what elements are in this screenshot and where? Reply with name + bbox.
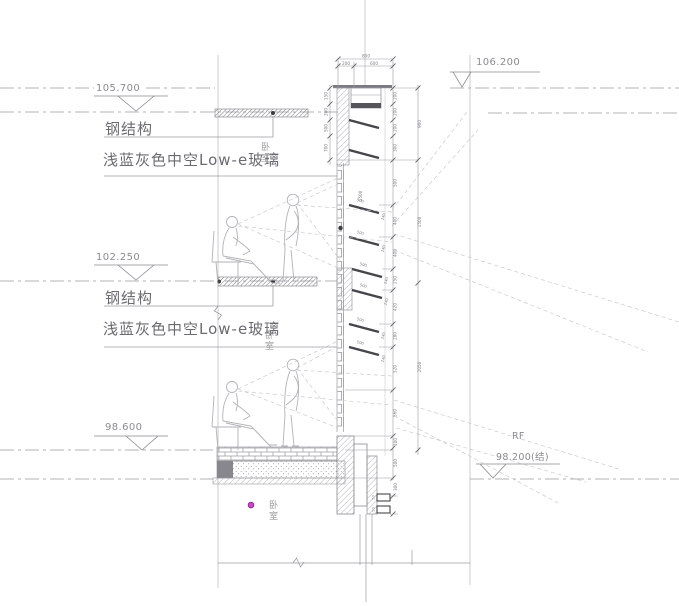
- dim-left: 500: [324, 124, 329, 132]
- label-steel-structure-upper: 钢结构: [105, 118, 153, 139]
- dim-bottom: 100: [393, 438, 398, 446]
- dim-right: 200: [393, 92, 398, 100]
- mid-slab-edge-hatch: [337, 268, 352, 310]
- dim-right: 420: [393, 303, 398, 311]
- label-lowe-glass-upper: 浅蓝灰色中空Low-e玻璃: [103, 149, 280, 170]
- dim-louver-length: 500: [356, 316, 365, 323]
- screed-band: [217, 461, 345, 478]
- dim-left: 150: [324, 92, 329, 100]
- dim-top-seg: 600: [370, 61, 378, 66]
- steel-beams: [215, 109, 317, 286]
- label-rf: RF: [512, 431, 525, 442]
- magenta-marker-dot: [248, 502, 254, 508]
- louver-array: [349, 120, 382, 355]
- label-room-mid: 卧室: [265, 331, 276, 352]
- elevation-102250: 102.250: [96, 252, 140, 263]
- bracket-lower: [377, 506, 390, 513]
- dim-bracket: 50: [372, 495, 376, 499]
- label-steel-structure-mid: 钢结构: [105, 287, 153, 308]
- dim-bottom: 500: [393, 459, 398, 467]
- dim-right: 400: [393, 249, 398, 257]
- glazing-dot: [338, 226, 342, 230]
- drawing-canvas: 800 200 600 200 200 200 300 500 400 400 …: [0, 0, 679, 606]
- sill-channel: [354, 444, 367, 506]
- dim-louver-depth: 240: [380, 212, 387, 221]
- elevation-98200: 98.200(结): [496, 449, 549, 463]
- dim-louver-depth: 240: [380, 244, 387, 253]
- dim-louver-length: 500: [356, 197, 365, 204]
- inner-hatch: [367, 456, 377, 514]
- dim-louver-length: 500: [359, 261, 368, 268]
- header-dark-bar: [351, 103, 381, 108]
- dim-louver-length: 500: [359, 282, 368, 289]
- dim-bottom: 300: [393, 483, 398, 491]
- dim-louver-length: 500: [356, 339, 365, 346]
- paver-band: [217, 447, 337, 461]
- dim-top-seg: 200: [342, 61, 350, 66]
- figure-standing-lower: [281, 359, 299, 446]
- dim-right: 520: [393, 365, 398, 373]
- parapet-cap: [333, 85, 392, 88]
- dim-right: 560: [393, 409, 398, 417]
- dim-left: 200: [324, 108, 329, 116]
- dim-right: 400: [393, 217, 398, 225]
- label-lowe-glass-mid: 浅蓝灰色中空Low-e玻璃: [103, 318, 280, 339]
- label-room-upper: 卧室: [261, 143, 272, 164]
- dim-right: 200: [393, 108, 398, 116]
- dim-right: 250: [393, 276, 398, 284]
- sight-lines: [238, 112, 679, 504]
- dim-right: 200: [393, 124, 398, 132]
- dim-outer: 900: [417, 120, 422, 128]
- parapet-wall-hatch: [337, 88, 349, 165]
- dim-louver-depth: 240: [380, 331, 387, 340]
- dim-louver-length: 500: [356, 229, 365, 236]
- dim-right: 500: [393, 179, 398, 187]
- dim-outer: 2050: [417, 361, 422, 372]
- figure-standing-upper: [281, 194, 299, 281]
- elevation-98600: 98.600: [105, 422, 142, 433]
- dim-outer: 1500: [417, 216, 422, 227]
- floor-buildup: [213, 436, 470, 602]
- upstand-hatch: [337, 436, 354, 514]
- dim-bracket: 50: [372, 507, 376, 511]
- dim-left: 700: [324, 144, 329, 152]
- dark-block: [217, 461, 233, 478]
- dim-top-overall: 800: [362, 54, 370, 59]
- bracket-upper: [377, 494, 390, 501]
- break-symbol-bottom: [293, 558, 304, 567]
- elevation-105700: 105.700: [96, 83, 140, 94]
- dim-louver-depth: 240: [383, 297, 390, 306]
- slab-hatch-band: [213, 478, 345, 484]
- dim-right: 280: [393, 332, 398, 340]
- label-room-lower: 卧室: [269, 501, 280, 522]
- dim-louver-depth: 240: [383, 276, 390, 285]
- dim-louver-depth: 240: [380, 354, 387, 363]
- elevation-106200: 106.200: [476, 57, 520, 68]
- curtain-wall: [333, 85, 392, 456]
- dim-right: 300: [393, 144, 398, 152]
- leader-dot-upper: [271, 111, 275, 115]
